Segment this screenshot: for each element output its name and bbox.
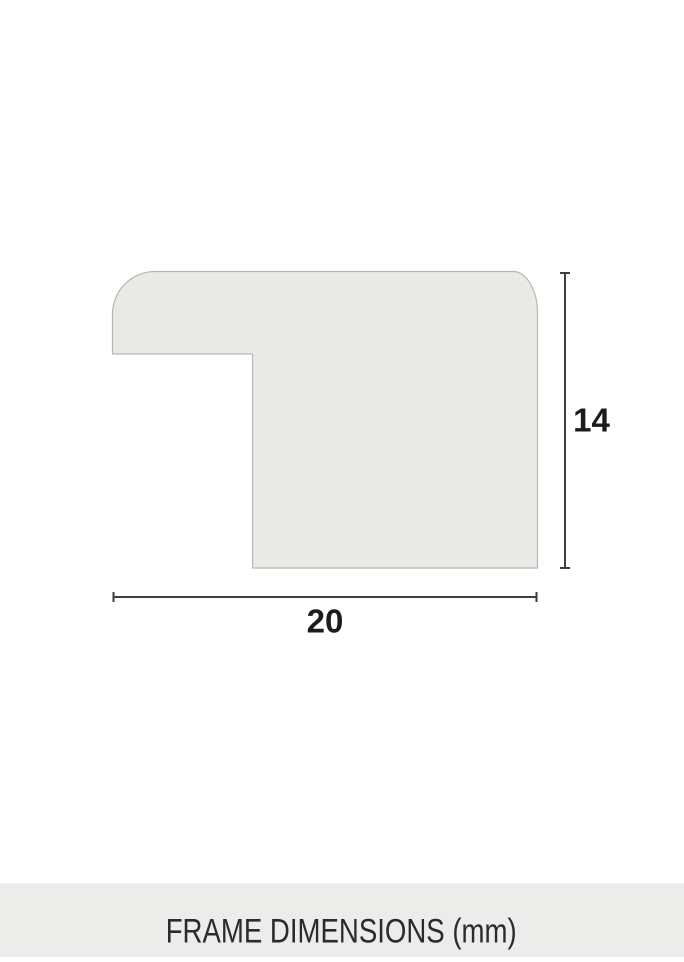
svg-text:14: 14 (573, 402, 610, 439)
svg-text:20: 20 (307, 603, 344, 640)
svg-text:FRAME DIMENSIONS (mm): FRAME DIMENSIONS (mm) (166, 913, 517, 951)
